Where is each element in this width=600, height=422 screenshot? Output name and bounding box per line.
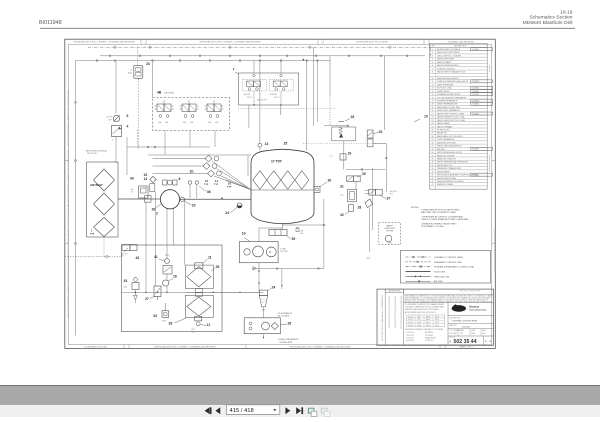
svg-text:DESCRIPTION: DESCRIPTION xyxy=(454,46,467,48)
svg-text:SHEET 1 OF 1: SHEET 1 OF 1 xyxy=(459,347,473,349)
svg-text:FIL/INS DUMP CUT VALVE: FIL/INS DUMP CUT VALVE xyxy=(437,48,461,51)
svg-text:24: 24 xyxy=(272,286,276,290)
svg-text:OPTION: OPTION xyxy=(386,231,394,233)
svg-text:RELIEF OIL: RELIEF OIL xyxy=(437,133,447,135)
svg-text:INTERSTATE-ELECTRIC COMPANY -: INTERSTATE-ELECTRIC COMPANY - SCHEMATIC … xyxy=(199,41,261,44)
svg-text:REV B: REV B xyxy=(426,319,431,321)
svg-text:0.7L: 0.7L xyxy=(330,156,334,158)
svg-text:30: 30 xyxy=(362,172,366,176)
svg-text:TYP: TYP xyxy=(204,184,209,186)
svg-text:1: 1 xyxy=(432,49,433,51)
svg-text:ITEM 3 CLOSES INTAKE BUTTERFLY: ITEM 3 CLOSES INTAKE BUTTERFLY VALVE AND xyxy=(421,218,469,221)
svg-text:CONTROL MODULE: CONTROL MODULE xyxy=(437,68,456,70)
svg-text:36: 36 xyxy=(431,162,433,164)
svg-text:39: 39 xyxy=(292,237,296,241)
svg-text:11: 11 xyxy=(432,81,434,83)
svg-text:12: 12 xyxy=(431,84,433,86)
svg-text:1-R-6845: 1-R-6845 xyxy=(472,174,479,176)
svg-text:35: 35 xyxy=(431,158,433,160)
svg-text:MANIFOLD DRAIN: MANIFOLD DRAIN xyxy=(437,183,454,186)
svg-text:50235441: 50235441 xyxy=(462,327,470,329)
svg-text:28: 28 xyxy=(169,322,173,326)
svg-text:28: 28 xyxy=(358,206,362,210)
svg-text:26: 26 xyxy=(431,130,433,132)
svg-text:AIR LINE: AIR LINE xyxy=(434,280,443,283)
svg-text:VALVE PRESSURE REG: VALVE PRESSURE REG xyxy=(437,64,459,67)
svg-text:6-21-05: 6-21-05 xyxy=(408,322,413,324)
svg-text:13: 13 xyxy=(265,142,269,146)
svg-text:VALVE MOUNTING SOLENOID: VALVE MOUNTING SOLENOID xyxy=(437,180,465,183)
svg-text:D.MW: D.MW xyxy=(471,333,476,335)
svg-text:BOTTLE 0.3 GAL: BOTTLE 0.3 GAL xyxy=(437,87,452,90)
svg-text:D.MW: D.MW xyxy=(417,325,422,327)
svg-text:1 PRESSURE IN OPTION. VALVE I: 1 PRESSURE IN OPTION. VALVE ITEM 5 xyxy=(421,209,460,212)
svg-text:31: 31 xyxy=(431,146,433,148)
svg-text:ADJ 40 PSI: ADJ 40 PSI xyxy=(257,99,267,102)
svg-text:4: 4 xyxy=(432,59,433,61)
svg-text:VALVE DRAIN: VALVE DRAIN xyxy=(437,170,450,173)
svg-text:30: 30 xyxy=(431,142,433,144)
svg-text:VALVE TEMP CONTROL 3-WAY: VALVE TEMP CONTROL 3-WAY xyxy=(437,112,465,115)
svg-text:37: 37 xyxy=(431,165,433,167)
svg-text:(12): (12) xyxy=(367,258,371,260)
svg-text:SWITCH PRESSURE 20 PSI: SWITCH PRESSURE 20 PSI xyxy=(437,152,462,154)
svg-text:24: 24 xyxy=(431,123,433,125)
svg-text:7: 7 xyxy=(432,68,433,70)
svg-text:SET 50: SET 50 xyxy=(274,97,279,99)
svg-text:PANEL MTG SWITCH: PANEL MTG SWITCH xyxy=(437,157,456,160)
svg-text:4B: 4B xyxy=(157,91,162,95)
svg-text:TYP: TYP xyxy=(227,187,232,189)
svg-text:32: 32 xyxy=(340,213,344,217)
svg-text:23: 23 xyxy=(192,204,196,208)
svg-text:6: 6 xyxy=(127,114,129,118)
svg-text:1-R-6845: 1-R-6845 xyxy=(472,49,479,51)
svg-text:1 - 1: 1 - 1 xyxy=(485,339,491,343)
svg-text:45A 45B: 45A 45B xyxy=(244,93,251,96)
svg-text:VENT: VENT xyxy=(162,321,167,323)
svg-text:10-19: 10-19 xyxy=(560,9,573,15)
svg-text:J.PW: J.PW xyxy=(417,316,421,318)
svg-text:JOINT EXPANSION: JOINT EXPANSION xyxy=(437,138,454,141)
svg-text:OIL CIRCULATION PUMP AIRLIF: OIL CIRCULATION PUMP AIRLIFT xyxy=(437,96,467,99)
svg-text:TYP: TYP xyxy=(90,234,95,236)
svg-text:8-09-05: 8-09-05 xyxy=(408,325,413,327)
svg-text:18: 18 xyxy=(351,115,355,119)
svg-text:3 INTAKE BUTTERFLY VALVE ITEM: 3 INTAKE BUTTERFLY VALVE ITEM 5 xyxy=(421,223,457,226)
svg-text:16: 16 xyxy=(173,275,177,279)
svg-text:PNEUMATIC CONTROL LINE: PNEUMATIC CONTROL LINE xyxy=(434,261,462,264)
svg-text:CONTROLS: CONTROLS xyxy=(425,340,433,342)
svg-text:1 502 35 40: 1 502 35 40 xyxy=(406,332,414,334)
svg-text:23: 23 xyxy=(146,62,150,66)
svg-text:AIR END: AIR END xyxy=(437,148,445,151)
svg-text:11: 11 xyxy=(207,323,211,327)
svg-text:VALVE BALL OIL FILL MIN: VALVE BALL OIL FILL MIN xyxy=(437,106,460,109)
svg-text:SEE NOTE 2: SEE NOTE 2 xyxy=(87,153,98,155)
svg-text:1-R-6845: 1-R-6845 xyxy=(472,81,479,83)
svg-text:PUMP: PUMP xyxy=(387,243,393,245)
svg-text:25: 25 xyxy=(284,141,288,145)
svg-text:MATCHES THE CYLINDER TO SEAL: MATCHES THE CYLINDER TO SEAL xyxy=(421,211,456,214)
svg-text:VALVE BALL CUT SOLENOID: VALVE BALL CUT SOLENOID xyxy=(437,135,463,138)
svg-text:VALVE DIRECTIONAL: VALVE DIRECTIONAL xyxy=(437,177,456,180)
svg-text:25: 25 xyxy=(216,265,220,269)
svg-text:42: 42 xyxy=(431,181,433,183)
svg-text:VENT: VENT xyxy=(165,255,170,257)
svg-text:19: 19 xyxy=(431,107,433,109)
svg-text:INTERSTATE-ELECTRIC COMPANY -: INTERSTATE-ELECTRIC COMPANY - SCHEMATIC … xyxy=(73,41,135,44)
svg-text:1-R-6845: 1-R-6845 xyxy=(472,100,479,102)
svg-text:38: 38 xyxy=(431,168,433,170)
svg-text:VALVE BLOW DOWN: VALVE BLOW DOWN xyxy=(437,141,456,144)
svg-text:2 REVISED PER ECN 4532 04-02: 2 REVISED PER ECN 4532 04-02-05 JPW xyxy=(394,296,396,329)
svg-text:INTERSTATE-ELECTRIC COMPANY S: INTERSTATE-ELECTRIC COMPANY SCHEMATIC AI… xyxy=(66,205,69,262)
svg-text:ORIFICE PRESSURE GAGE LATCH: ORIFICE PRESSURE GAGE LATCH xyxy=(437,80,469,83)
svg-text:7: 7 xyxy=(233,68,235,72)
svg-text:STRAINER INLINE FILTER: STRAINER INLINE FILTER xyxy=(437,93,461,96)
svg-text:17 TYP: 17 TYP xyxy=(271,160,283,164)
svg-text:1-R-6845: 1-R-6845 xyxy=(472,88,479,90)
svg-text:PSI: PSI xyxy=(390,194,393,196)
svg-text:4: 4 xyxy=(127,125,129,129)
svg-text:3: 3 xyxy=(432,55,433,57)
svg-text:29: 29 xyxy=(379,130,383,134)
svg-text:4 502 35 43: 4 502 35 43 xyxy=(406,340,414,342)
svg-text:INTERSTATE-ELECTRIC COMPANY S: INTERSTATE-ELECTRIC COMPANY SCHEMATIC AI… xyxy=(66,262,69,319)
svg-text:VALVE DRAIN: VALVE DRAIN xyxy=(437,122,450,125)
svg-text:INTERSTATE-ELECTRIC COMPANY S: INTERSTATE-ELECTRIC COMPANY SCHEMATIC AI… xyxy=(66,90,69,147)
svg-text:415 / 418: 415 / 418 xyxy=(230,408,254,414)
svg-text:VALVE CHECK BOTTLE 0.3 GAL: VALVE CHECK BOTTLE 0.3 GAL xyxy=(437,119,465,122)
svg-text:(OPTION): (OPTION) xyxy=(164,93,174,95)
svg-text:1-R-6845: 1-R-6845 xyxy=(472,113,479,115)
svg-text:PANEL MTG PLATE: PANEL MTG PLATE xyxy=(437,154,455,157)
svg-text:VALVE THERMAL: VALVE THERMAL xyxy=(437,125,452,128)
svg-text:INTERSTATE-ELECTRIC SCHEMATIC: INTERSTATE-ELECTRIC SCHEMATIC AIR RECEIV… xyxy=(493,228,496,273)
svg-text:Schematics Section: Schematics Section xyxy=(530,15,573,21)
svg-text:J.PW: J.PW xyxy=(417,319,421,321)
svg-text:WEH: WEH xyxy=(482,333,485,335)
svg-text:41: 41 xyxy=(154,255,158,259)
svg-text:2: 2 xyxy=(432,52,433,54)
svg-text:DESCRIPTION: DESCRIPTION xyxy=(450,317,462,319)
svg-text:39: 39 xyxy=(431,171,433,173)
svg-text:PRESSURE TRANSDUCER: PRESSURE TRANSDUCER xyxy=(437,167,462,170)
svg-text:1-R-6845: 1-R-6845 xyxy=(472,91,479,93)
svg-text:DWG NO: DWG NO xyxy=(449,337,456,339)
svg-text:10: 10 xyxy=(424,115,428,119)
svg-text:13: 13 xyxy=(431,88,433,90)
svg-text:THIS DRAWING IS THE PROPERTY O: THIS DRAWING IS THE PROPERTY OF BUCYRUS … xyxy=(381,295,384,341)
svg-text:1b: 1b xyxy=(242,231,246,235)
svg-text:COOLING WTR: COOLING WTR xyxy=(279,342,293,344)
svg-text:21: 21 xyxy=(431,113,433,115)
svg-text:502 35 44: 502 35 44 xyxy=(454,339,477,345)
svg-text:32: 32 xyxy=(431,149,433,151)
svg-text:2 PRESSURE IN CONTROL CYLINDE: 2 PRESSURE IN CONTROL CYLINDER AND xyxy=(421,215,463,218)
svg-text:SEAL LEVEL SEPARATOR: SEAL LEVEL SEPARATOR xyxy=(437,109,461,112)
svg-text:M: M xyxy=(269,250,271,254)
svg-text:1b: 1b xyxy=(190,170,194,174)
svg-text:E: E xyxy=(449,340,451,344)
svg-text:VALVE CHECK MIN: VALVE CHECK MIN xyxy=(437,58,455,61)
svg-text:NOTES:: NOTES: xyxy=(411,207,420,209)
svg-text:HYDRAULIC/PNEUMATIC CONTROL LI: HYDRAULIC/PNEUMATIC CONTROL LINE xyxy=(434,266,475,269)
svg-text:26: 26 xyxy=(288,322,292,326)
svg-text:1-R-6845: 1-R-6845 xyxy=(472,94,479,96)
svg-text:OIL PIPING: OIL PIPING xyxy=(425,335,434,337)
svg-text:HYDRAULIC CONTROL LINES: HYDRAULIC CONTROL LINES xyxy=(434,256,463,259)
svg-text:14: 14 xyxy=(431,91,433,93)
svg-text:15: 15 xyxy=(431,94,433,96)
svg-text:18: 18 xyxy=(431,104,433,106)
svg-text:TYP: TYP xyxy=(214,184,219,186)
svg-text:1 REVISED PER ECN 4471 02-15: 1 REVISED PER ECN 4471 02-15-05 JPW xyxy=(388,296,390,329)
svg-text:16: 16 xyxy=(431,97,433,99)
svg-text:GAGE PRESSURE: GAGE PRESSURE xyxy=(437,83,454,86)
svg-text:OIL: OIL xyxy=(131,192,134,194)
svg-text:37: 37 xyxy=(387,197,391,201)
svg-text:17: 17 xyxy=(431,101,433,103)
svg-text:19: 19 xyxy=(348,152,352,156)
svg-text:IS NORMALLY CLOSED: IS NORMALLY CLOSED xyxy=(421,225,444,228)
svg-text:33: 33 xyxy=(124,279,128,283)
svg-text:INTERSTATE-ELECTRIC COMPANY -: INTERSTATE-ELECTRIC COMPANY - SCHEMATIC … xyxy=(154,346,216,349)
svg-text:29: 29 xyxy=(431,139,433,141)
svg-text:27: 27 xyxy=(431,133,433,135)
svg-text:VALVE BALL CUT: VALVE BALL CUT xyxy=(437,164,453,167)
svg-text:11: 11 xyxy=(208,256,212,260)
svg-text:10: 10 xyxy=(431,78,433,80)
svg-text:45A 45B: 45A 45B xyxy=(270,93,277,96)
svg-text:40 PSI: 40 PSI xyxy=(106,117,112,119)
svg-text:14: 14 xyxy=(144,177,148,181)
svg-text:28: 28 xyxy=(431,136,433,138)
svg-text:GAGE TEMPERATURE: GAGE TEMPERATURE xyxy=(437,103,458,106)
svg-text:NOT FOR CONSTRUCTION: NOT FOR CONSTRUCTION xyxy=(460,291,481,293)
svg-text:SCHEMATIC AIR RECEIVER: SCHEMATIC AIR RECEIVER xyxy=(448,41,475,44)
svg-text:0.7L: 0.7L xyxy=(340,195,344,197)
svg-text:GLASS SIGHT: GLASS SIGHT xyxy=(437,90,450,93)
svg-text:ITEM: ITEM xyxy=(431,46,435,48)
svg-text:43: 43 xyxy=(130,177,134,181)
svg-text:VALVE DIRECTIONAL AIR PILOT: VALVE DIRECTIONAL AIR PILOT xyxy=(437,71,466,74)
svg-text:43: 43 xyxy=(431,184,433,186)
svg-text:OIL COOLER: OIL COOLER xyxy=(278,315,290,317)
svg-text:TO HYDRAULIC: TO HYDRAULIC xyxy=(278,312,293,315)
svg-text:27: 27 xyxy=(145,297,149,301)
svg-text:D.MW: D.MW xyxy=(417,322,422,324)
svg-text:2 502 35 41: 2 502 35 41 xyxy=(406,335,414,337)
svg-text:1-R-6845: 1-R-6845 xyxy=(472,149,479,151)
svg-text:31: 31 xyxy=(340,185,344,189)
svg-text:VALVE INLET BUTTERFLY: VALVE INLET BUTTERFLY xyxy=(437,51,461,54)
svg-text:VALVE BYPASS: VALVE BYPASS xyxy=(437,61,452,64)
svg-text:* AIR FILTER (LEGEND): * AIR FILTER (LEGEND) xyxy=(85,149,107,152)
svg-text:SET 50: SET 50 xyxy=(247,97,252,99)
svg-text:ELEMENT SEPARATOR: ELEMENT SEPARATOR xyxy=(437,100,458,103)
svg-text:34: 34 xyxy=(153,314,157,318)
svg-text:33: 33 xyxy=(431,152,433,154)
svg-text:VALVE AIR REGULATOR: VALVE AIR REGULATOR xyxy=(437,77,459,80)
svg-text:INTERSTATE-ELECTRIC COMPANY S: INTERSTATE-ELECTRIC COMPANY SCHEMATIC AI… xyxy=(66,150,69,207)
svg-text:30: 30 xyxy=(328,179,332,183)
svg-text:VENT/LUB LINE: VENT/LUB LINE xyxy=(434,276,450,278)
svg-text:5: 5 xyxy=(432,62,433,64)
svg-text:INTERSTATE-ELECTRIC SCHEME: INTERSTATE-ELECTRIC SCHEME xyxy=(356,41,388,44)
svg-text:International Inc.: International Inc. xyxy=(470,308,488,311)
svg-text:SHEET: SHEET xyxy=(460,330,465,332)
svg-text:2: 2 xyxy=(156,212,158,216)
svg-text:1-R-6845: 1-R-6845 xyxy=(472,104,479,106)
svg-text:2-15-05: 2-15-05 xyxy=(408,316,413,318)
svg-text:FILTER FLUID: FILTER FLUID xyxy=(437,130,450,132)
svg-text:Bucyrus: Bucyrus xyxy=(470,305,480,308)
svg-text:36: 36 xyxy=(207,190,211,194)
svg-text:VALVE DIFFERENTIAL PRESSURE: VALVE DIFFERENTIAL PRESSURE xyxy=(437,161,468,164)
svg-text:SCHEMATIC & AIR RECEIVER: SCHEMATIC & AIR RECEIVER xyxy=(452,319,478,322)
svg-text:FLUID LINE: FLUID LINE xyxy=(434,271,446,273)
svg-text:CHKD: CHKD xyxy=(471,330,475,332)
svg-text:INTERSTATE-ELECTRIC: INTERSTATE-ELECTRIC xyxy=(85,346,108,349)
svg-text:MD6640 Blasthole Drill: MD6640 Blasthole Drill xyxy=(523,20,573,26)
svg-text:J-2: J-2 xyxy=(129,70,132,72)
svg-text:SYSTEM: SYSTEM xyxy=(280,251,288,253)
svg-text:3 502 35 42: 3 502 35 42 xyxy=(406,337,414,339)
svg-text:UNIT CONTROL CYLINDER: UNIT CONTROL CYLINDER xyxy=(437,55,462,57)
svg-text:8: 8 xyxy=(179,177,181,181)
svg-text:41: 41 xyxy=(431,178,433,180)
svg-text:42: 42 xyxy=(136,256,140,260)
svg-text:8: 8 xyxy=(432,72,433,74)
svg-text:INTERSTATE-ELECTRIC COMPANY -: INTERSTATE-ELECTRIC COMPANY - SCHEMATIC … xyxy=(289,346,351,349)
svg-text:3 REVISED PER ECN 4610 06-21: 3 REVISED PER ECN 4610 06-21-05 DMW xyxy=(400,296,402,329)
svg-text:20: 20 xyxy=(431,110,433,112)
svg-text:25: 25 xyxy=(431,126,433,128)
svg-text:VALVE DRAIN BOTTLE 0.5 GAL: VALVE DRAIN BOTTLE 0.5 GAL xyxy=(437,116,465,119)
svg-text:4-02-05: 4-02-05 xyxy=(408,319,413,321)
svg-text:22: 22 xyxy=(431,117,433,119)
svg-text:40: 40 xyxy=(431,175,433,177)
svg-text:AIR INLET: AIR INLET xyxy=(90,183,103,187)
svg-text:BI011948: BI011948 xyxy=(39,20,62,26)
svg-text:24: 24 xyxy=(225,211,229,215)
svg-text:6: 6 xyxy=(432,65,433,67)
svg-text:VALVE CHECK AIRSERVICE: VALVE CHECK AIRSERVICE xyxy=(437,145,463,148)
svg-text:23: 23 xyxy=(431,120,433,122)
svg-text:34: 34 xyxy=(431,155,433,157)
